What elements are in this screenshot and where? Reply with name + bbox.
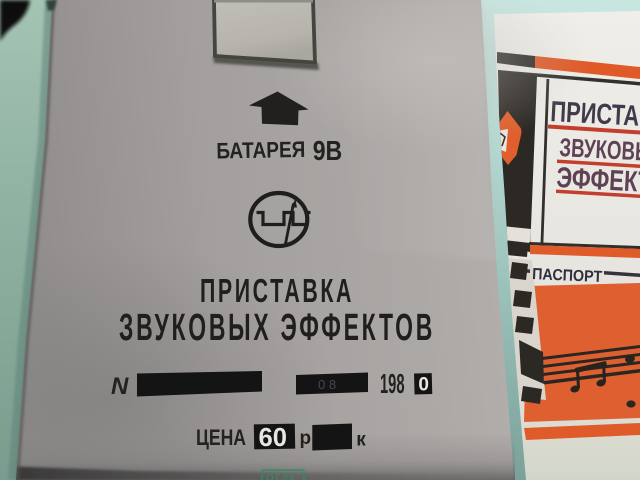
svg-text:ОТ 23: ОТ 23 [266,473,294,480]
svg-text:198: 198 [380,368,405,399]
svg-text:р: р [300,428,312,449]
svg-text:ЗВУКОВЫХ ЭФФЕКТОВ: ЗВУКОВЫХ ЭФФЕКТОВ [119,307,435,349]
svg-text:9В: 9В [313,135,343,166]
svg-text:0: 0 [418,375,429,396]
svg-text:ПАСПОРТ: ПАСПОРТ [532,266,603,286]
svg-text:к: к [356,430,366,451]
svg-text:0 8: 0 8 [318,377,336,392]
svg-text:N: N [111,373,129,400]
svg-text:БАТАРЕЯ: БАТАРЕЯ [216,137,305,164]
svg-text:ПРИСТАВКА: ПРИСТАВКА [200,272,354,309]
svg-text:ЦЕНА: ЦЕНА [196,425,246,450]
svg-text:60: 60 [259,422,288,452]
